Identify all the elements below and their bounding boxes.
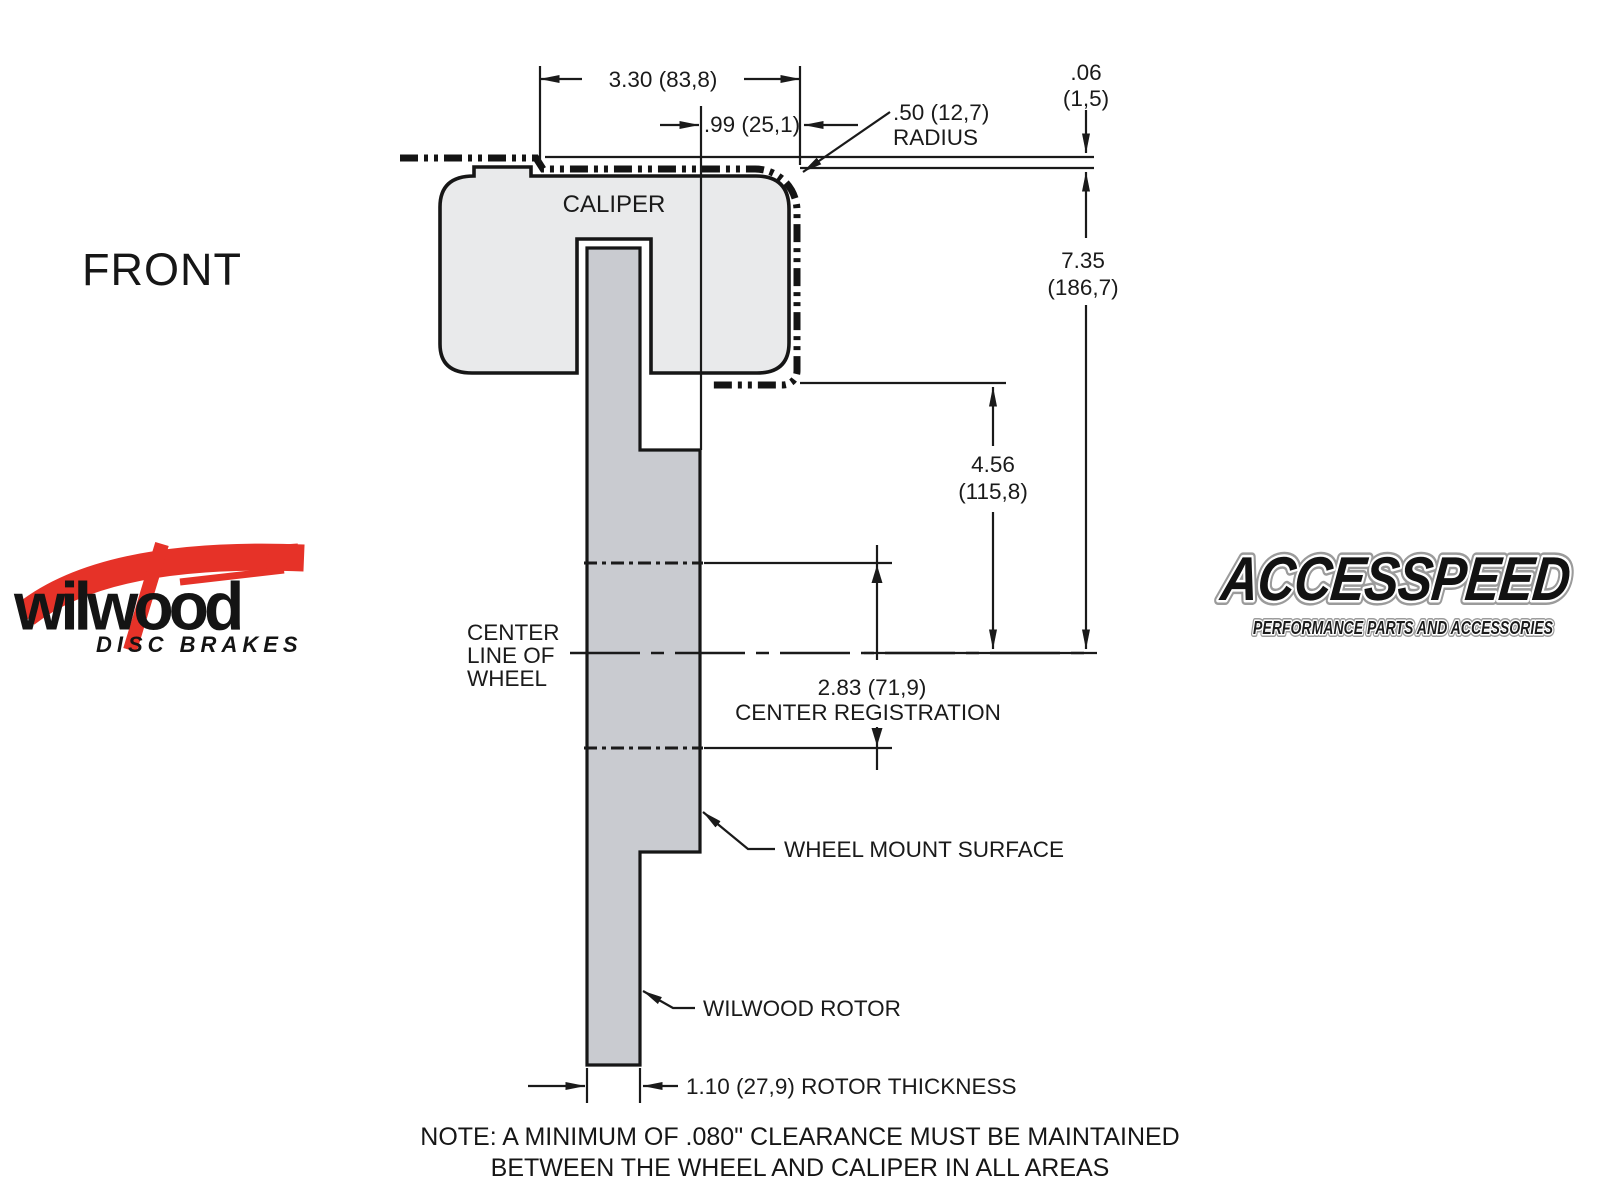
svg-text:(1,5): (1,5) [1063, 86, 1109, 111]
dim-caliper-to-centerline: 4.56 (115,8) [958, 452, 1028, 504]
dim-wheel-clearance: .06 (1,5) [1063, 60, 1109, 111]
svg-text:CENTER REGISTRATION: CENTER REGISTRATION [735, 700, 1001, 725]
dim-rotor-thickness: 1.10 (27,9) ROTOR THICKNESS [686, 1074, 1017, 1099]
svg-text:CENTER: CENTER [467, 620, 560, 645]
clearance-note-line2: BETWEEN THE WHEEL AND CALIPER IN ALL ARE… [400, 1153, 1200, 1184]
brake-clearance-diagram: CALIPER 3.30 (83,8) .99 (25,1) .50 (12,7… [0, 0, 1600, 1200]
wilwood-rotor-label: WILWOOD ROTOR [703, 996, 901, 1021]
wilwood-rotor-leader [643, 991, 695, 1008]
view-label: FRONT [82, 244, 242, 296]
svg-text:(115,8): (115,8) [958, 479, 1028, 504]
wilwood-logo: wilwood DISC BRAKES [12, 522, 322, 657]
svg-text:.06: .06 [1070, 60, 1101, 85]
wilwood-tagline: DISC BRAKES [96, 632, 303, 658]
caliper-label: CALIPER [563, 191, 666, 218]
accesspeed-tagline: PERFORMANCE PARTS AND ACCESSORIES PERFOR… [1253, 617, 1553, 638]
dim-overall-width: 3.30 (83,8) [609, 67, 718, 92]
svg-text:ACCESSPEED: ACCESSPEED [1216, 545, 1573, 614]
svg-text:7.35: 7.35 [1061, 248, 1105, 273]
clearance-note-line1: NOTE: A MINIMUM OF .080" CLEARANCE MUST … [400, 1122, 1200, 1153]
svg-text:2.83 (71,9): 2.83 (71,9) [818, 675, 927, 700]
svg-text:LINE OF: LINE OF [467, 643, 555, 668]
svg-text:.50 (12,7): .50 (12,7) [893, 100, 989, 125]
dim-corner-radius: .50 (12,7) RADIUS [893, 100, 989, 150]
centerline-label: CENTER LINE OF WHEEL [467, 620, 560, 691]
svg-text:4.56: 4.56 [971, 452, 1015, 477]
svg-text:WHEEL: WHEEL [467, 666, 547, 691]
svg-text:RADIUS: RADIUS [893, 125, 978, 150]
dim-overall-height: 7.35 (186,7) [1047, 248, 1118, 300]
wheel-mount-surface-label: WHEEL MOUNT SURFACE [784, 837, 1064, 862]
svg-text:(186,7): (186,7) [1047, 275, 1118, 300]
accesspeed-wordmark: ACCESSPEED ACCESSPEED ACCESSPEED [1216, 545, 1573, 614]
clearance-note: NOTE: A MINIMUM OF .080" CLEARANCE MUST … [400, 1122, 1200, 1184]
dim-center-registration: 2.83 (71,9) CENTER REGISTRATION [735, 675, 1001, 725]
accesspeed-logo: ACCESSPEED ACCESSPEED ACCESSPEED PERFORM… [1205, 528, 1590, 648]
svg-text:PERFORMANCE PARTS AND ACCESSOR: PERFORMANCE PARTS AND ACCESSORIES [1253, 617, 1553, 638]
dim-mount-offset: .99 (25,1) [704, 112, 800, 137]
wheel-mount-surface-leader [703, 812, 775, 849]
